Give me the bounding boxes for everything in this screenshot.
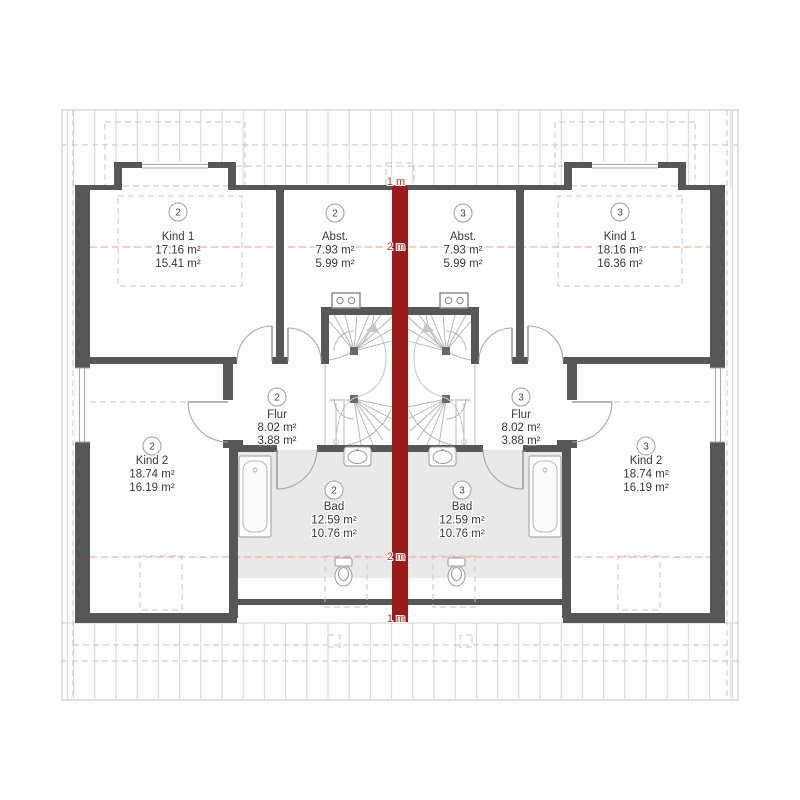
room-area-total: 8.02 m² (502, 422, 541, 434)
room-area-total: 18.16 m² (597, 245, 643, 257)
room-area-total: 18.74 m² (129, 469, 175, 481)
room-name: Flur (511, 409, 531, 421)
unit-number: 2 (175, 208, 181, 219)
room-name: Kind 2 (630, 455, 663, 467)
room-area-living: 5.99 m² (444, 258, 483, 270)
room-label-unit2-kind1: 2 Kind 1 17.16 m² 15.41 m² (155, 203, 201, 270)
unit-number: 2 (331, 486, 337, 497)
washbasin-icon (344, 447, 371, 466)
room-area-total: 17.16 m² (155, 245, 201, 257)
room-area-total: 7.93 m² (316, 245, 355, 257)
floor-plan-canvas: 1 m 2 m 2 m 1 m 2 Kind 1 17.16 m² 15.41 … (0, 0, 800, 800)
height-label-lower: 2 m (387, 551, 405, 563)
room-label-unit2-kind2: 2 Kind 2 18.74 m² 16.19 m² (129, 437, 175, 494)
height-label-top: 1 m (387, 176, 405, 188)
door-kind1 (237, 326, 272, 361)
room-label-unit3-kind1: 3 Kind 1 18.16 m² 16.36 m² (597, 203, 643, 270)
unit-number: 2 (149, 442, 155, 453)
room-label-unit2-flur: 2 Flur 8.02 m² 3.88 m² (258, 388, 297, 447)
unit-number: 2 (274, 393, 280, 404)
room-area-living: 16.19 m² (129, 482, 175, 494)
door-abst (288, 328, 321, 361)
room-name: Kind 1 (162, 231, 195, 243)
room-name: Bad (324, 501, 344, 513)
room-area-living: 3.88 m² (258, 435, 297, 447)
room-label-unit3-flur: 3 Flur 8.02 m² 3.88 m² (502, 388, 541, 447)
room-name: Kind 2 (136, 455, 169, 467)
room-name: Bad (452, 501, 472, 513)
skylight-outline (140, 556, 182, 610)
room-area-living: 15.41 m² (155, 258, 201, 270)
floor-plan-image: 1 m 2 m 2 m 1 m 2 Kind 1 17.16 m² 15.41 … (0, 0, 800, 800)
unit-3-structure (400, 110, 733, 700)
room-label-unit3-abst: 3 Abst. 7.93 m² 5.99 m² (444, 204, 483, 270)
room-area-living: 10.76 m² (439, 528, 485, 540)
room-area-living: 16.36 m² (597, 258, 643, 270)
room-area-total: 18.74 m² (623, 469, 669, 481)
room-area-total: 8.02 m² (258, 422, 297, 434)
unit-number: 3 (643, 442, 649, 453)
room-area-living: 16.19 m² (623, 482, 669, 494)
room-area-living: 10.76 m² (311, 528, 357, 540)
unit-number: 3 (518, 393, 524, 404)
room-area-living: 5.99 m² (316, 258, 355, 270)
room-label-unit3-kind2: 3 Kind 2 18.74 m² 16.19 m² (623, 437, 669, 494)
unit-number: 3 (460, 209, 466, 220)
room-area-living: 3.88 m² (502, 435, 541, 447)
room-area-total: 7.93 m² (444, 245, 483, 257)
gable-window (75, 368, 90, 442)
room-name: Abst. (450, 231, 476, 243)
stair-walking-line (334, 322, 387, 445)
room-name: Abst. (322, 231, 348, 243)
winder-stair (325, 315, 392, 445)
room-name: Flur (267, 409, 287, 421)
unit-number: 3 (617, 208, 623, 219)
room-label-unit2-abst: 2 Abst. 7.93 m² 5.99 m² (316, 204, 355, 270)
room-area-total: 12.59 m² (439, 515, 485, 527)
unit-2-structure (68, 110, 401, 700)
bathtub-icon (239, 456, 271, 537)
unit-number: 3 (459, 486, 465, 497)
room-area-total: 12.59 m² (311, 515, 357, 527)
chimney-icon (332, 293, 360, 308)
unit-number: 2 (332, 209, 338, 220)
height-label-bottom: 1 m (387, 613, 405, 625)
door-kind2 (188, 402, 228, 442)
room-name: Kind 1 (604, 231, 637, 243)
height-label-upper: 2 m (387, 241, 405, 253)
